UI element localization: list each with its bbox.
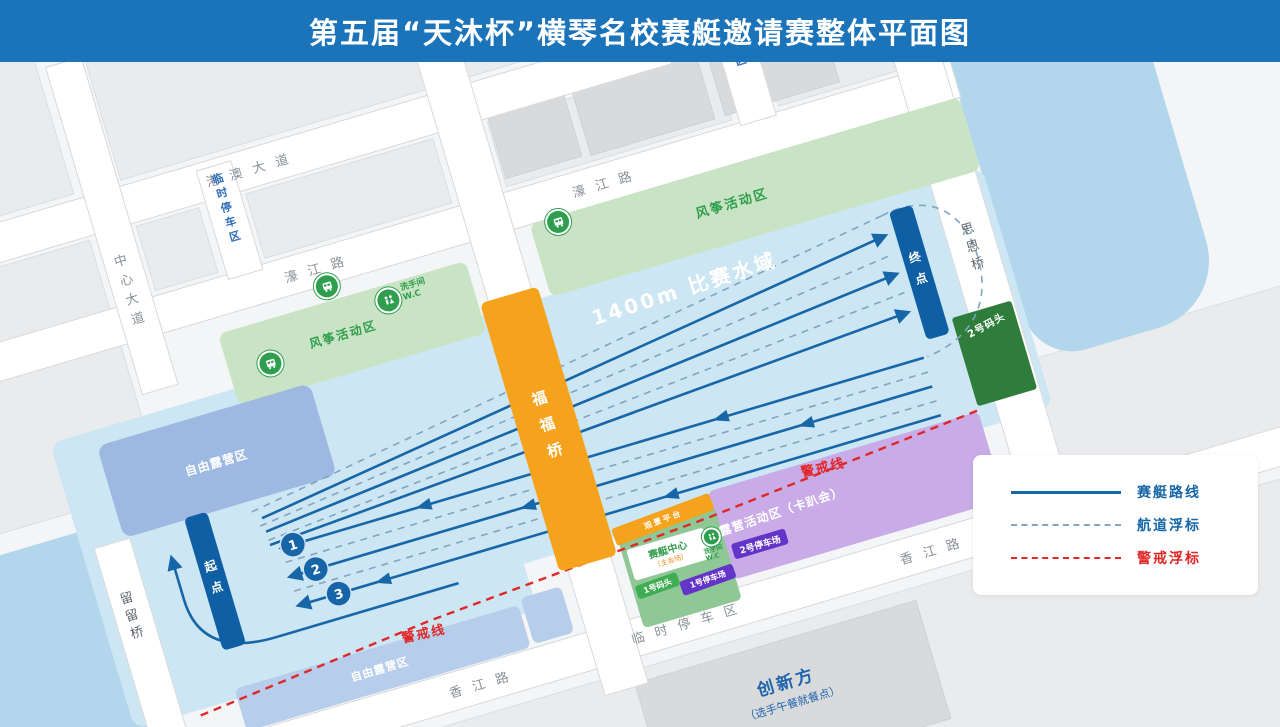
legend-label-rowing-route: 赛艇路线 xyxy=(1137,482,1201,502)
legend-solid-line-sample xyxy=(1011,491,1121,494)
legend-label-warning-buoys: 警戒浮标 xyxy=(1137,548,1201,568)
title-bar: 第五届“天沐杯”横琴名校赛艇邀请赛整体平面图 xyxy=(0,0,1280,62)
bus-glyph-icon xyxy=(262,355,278,371)
restroom-figures-icon xyxy=(380,292,396,308)
free-camping-block-small xyxy=(520,586,574,644)
legend-row-rowing-route: 赛艇路线 xyxy=(973,482,1258,502)
page-title: 第五届“天沐杯”横琴名校赛艇邀请赛整体平面图 xyxy=(309,10,971,52)
restroom-figures-icon xyxy=(705,531,717,543)
fufu-bridge-label: 福福桥 xyxy=(527,387,570,471)
legend-row-warning-buoys: 警戒浮标 xyxy=(973,548,1258,568)
legend-dashed-blue-sample xyxy=(1011,524,1121,526)
bus-glyph-icon xyxy=(319,278,335,294)
venue-plan-screenshot: { "header": { "title": "第五届“天沐杯”横琴名校赛艇邀请… xyxy=(0,0,1280,727)
legend-dashed-red-sample xyxy=(1011,557,1121,559)
legend-row-channel-buoys: 航道浮标 xyxy=(973,515,1258,535)
city-block xyxy=(136,207,219,291)
legend-card: 赛艇路线 航道浮标 警戒浮标 xyxy=(973,455,1258,595)
bus-glyph-icon xyxy=(550,214,566,230)
legend-label-channel-buoys: 航道浮标 xyxy=(1137,515,1201,535)
city-map-rotated-canvas: 创新方 （选手午餐就餐点） 港澳大道 濠江路 濠江路 香江路 临时停车区 香江路… xyxy=(0,0,1280,727)
